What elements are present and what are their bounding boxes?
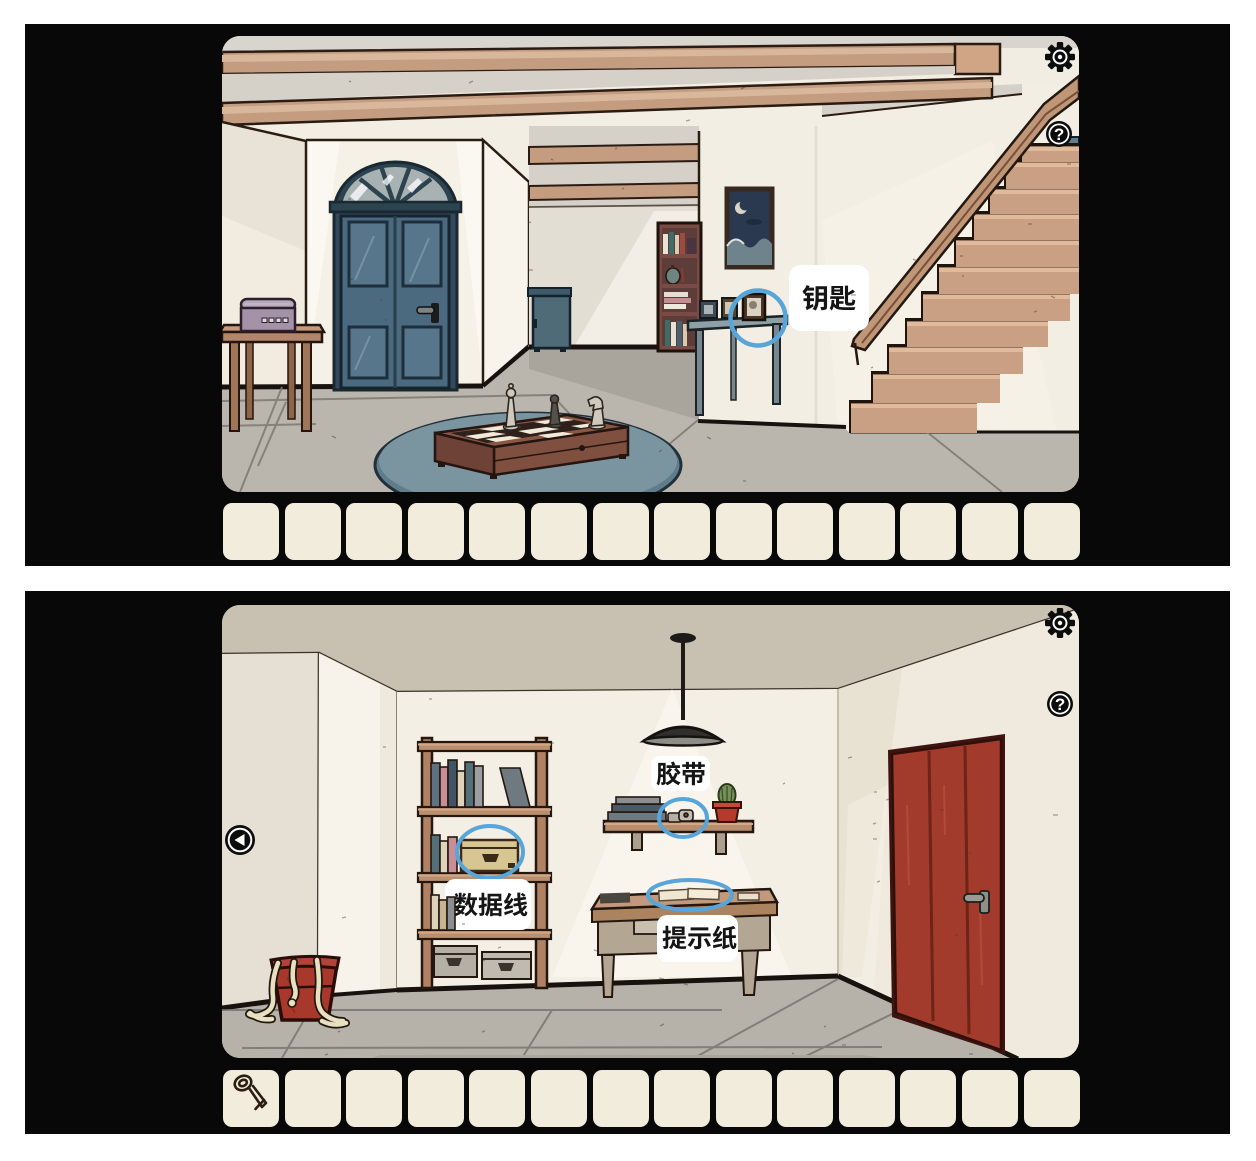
svg-text:?: ? bbox=[1054, 125, 1064, 144]
svg-text:?: ? bbox=[1055, 695, 1065, 714]
